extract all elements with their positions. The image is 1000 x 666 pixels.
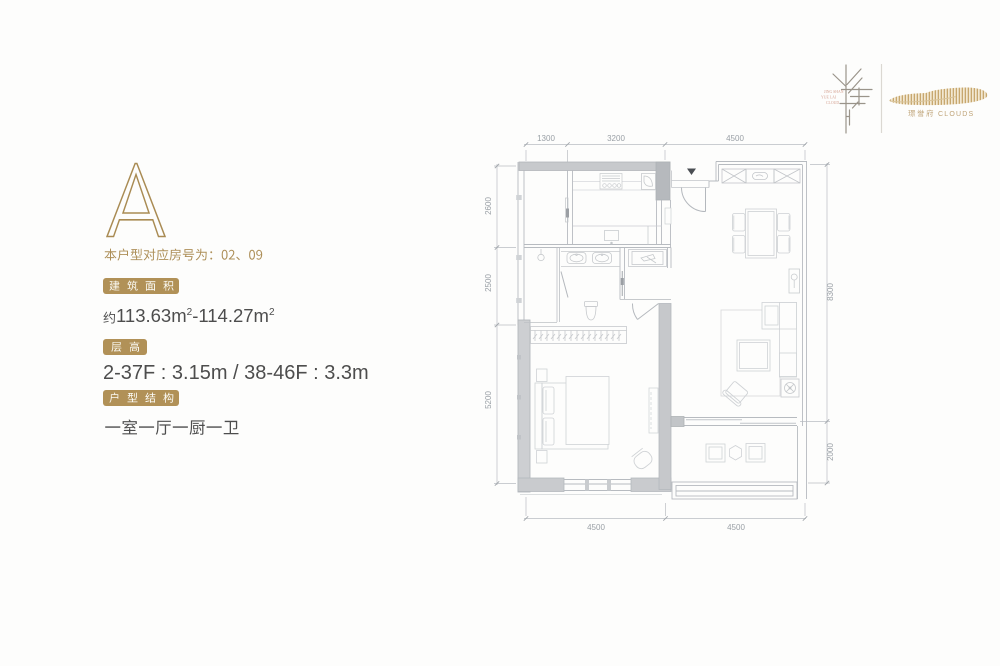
svg-text:2000: 2000: [826, 443, 835, 461]
svg-text:2500: 2500: [484, 274, 493, 292]
svg-text:CLOUD: CLOUD: [826, 101, 839, 105]
svg-text:JING SHAN: JING SHAN: [824, 90, 844, 94]
svg-text:YUE LAI: YUE LAI: [821, 96, 837, 100]
svg-text:3200: 3200: [607, 134, 625, 143]
svg-text:4500: 4500: [587, 523, 605, 532]
svg-text:CLOUDS: CLOUDS: [938, 111, 974, 118]
svg-text:8300: 8300: [826, 283, 835, 301]
svg-text:1300: 1300: [537, 134, 555, 143]
svg-text:5200: 5200: [484, 391, 493, 409]
svg-text:4500: 4500: [726, 134, 744, 143]
svg-text:2600: 2600: [484, 197, 493, 215]
svg-text:4500: 4500: [727, 523, 745, 532]
